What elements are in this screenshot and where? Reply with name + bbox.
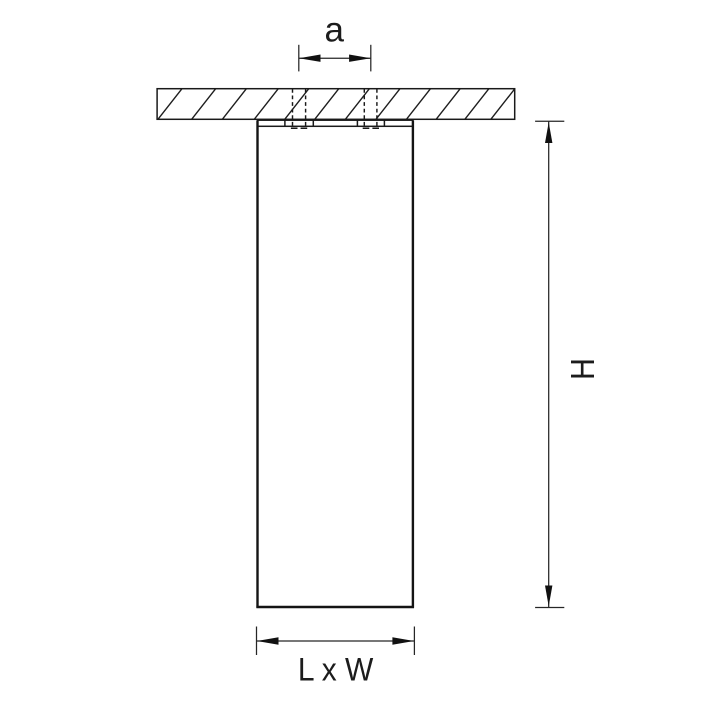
svg-text:a: a bbox=[324, 11, 344, 50]
svg-text:L x W: L x W bbox=[298, 652, 374, 688]
svg-text:H: H bbox=[564, 358, 601, 380]
